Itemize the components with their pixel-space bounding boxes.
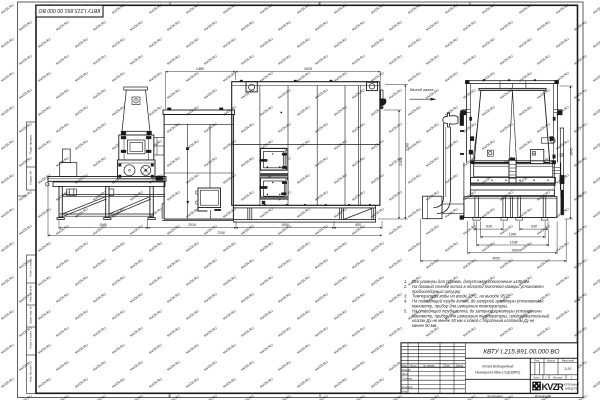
svg-text:КВТУ I.215.891.00.000 ВО: КВТУ I.215.891.00.000 ВО bbox=[39, 7, 101, 13]
svg-text:ЗАВОД РФ: ЗАВОД РФ bbox=[565, 388, 577, 391]
svg-text:Изм.: Изм. bbox=[401, 364, 407, 368]
svg-text:2.: 2. bbox=[403, 284, 407, 289]
svg-text:1:20: 1:20 bbox=[564, 367, 571, 371]
svg-text:1960: 1960 bbox=[99, 223, 107, 227]
svg-text:2845: 2845 bbox=[570, 148, 574, 157]
svg-text:4.: 4. bbox=[404, 299, 407, 304]
svg-text:Подп. и дата: Подп. и дата bbox=[29, 331, 33, 349]
svg-text:Лит.: Лит. bbox=[533, 358, 540, 362]
svg-text:3050: 3050 bbox=[492, 256, 500, 260]
svg-text:Перв. примен.: Перв. примен. bbox=[29, 134, 33, 154]
svg-text:Лист: Лист bbox=[532, 375, 541, 379]
svg-text:630: 630 bbox=[531, 225, 537, 229]
svg-text:КОТЕЛЬНЫЙ: КОТЕЛЬНЫЙ bbox=[564, 384, 579, 387]
svg-text:Справ. №: Справ. № bbox=[29, 170, 33, 184]
svg-text:Масса: Масса bbox=[547, 358, 555, 362]
svg-text:Пров.: Пров. bbox=[402, 372, 409, 376]
svg-text:КВТУ I.215.891.00.000 ВО: КВТУ I.215.891.00.000 ВО bbox=[483, 349, 559, 356]
svg-text:Дата: Дата bbox=[455, 364, 464, 368]
svg-text:5.: 5. bbox=[404, 308, 407, 313]
svg-text:1906: 1906 bbox=[511, 248, 519, 252]
svg-text:KVZR: KVZR bbox=[542, 382, 565, 392]
svg-text:Формат А2: Формат А2 bbox=[535, 394, 552, 398]
svg-text:2160: 2160 bbox=[405, 142, 409, 152]
svg-text:7200: 7200 bbox=[217, 231, 225, 235]
svg-text:2: 2 bbox=[318, 2, 320, 6]
svg-text:1950: 1950 bbox=[281, 223, 289, 227]
svg-text:2034: 2034 bbox=[187, 223, 196, 227]
svg-text:3625: 3625 bbox=[304, 67, 313, 71]
svg-text:2105: 2105 bbox=[399, 157, 403, 167]
svg-text:Неалюрит1-КВм-2,5-ДО(ВПХ): Неалюрит1-КВм-2,5-ДО(ВПХ) bbox=[475, 371, 520, 375]
svg-text:Инв. № дубл.: Инв. № дубл. bbox=[29, 284, 33, 301]
svg-text:менее 50 мм.: менее 50 мм. bbox=[412, 323, 437, 328]
svg-text:Котел Водогрейный: Котел Водогрейный bbox=[482, 365, 513, 369]
svg-text:№ докум.: № докум. bbox=[423, 364, 435, 368]
svg-text:685: 685 bbox=[355, 223, 361, 227]
svg-text:Инв. № подл.: Инв. № подл. bbox=[29, 364, 33, 382]
svg-text:Т.контр.: Т.контр. bbox=[402, 376, 413, 380]
svg-text:1360: 1360 bbox=[509, 232, 517, 236]
svg-text:Разраб.: Разраб. bbox=[402, 368, 412, 372]
svg-text:Копировал: Копировал bbox=[488, 394, 503, 398]
svg-text:Утв.: Утв. bbox=[402, 389, 408, 393]
svg-text:1538: 1538 bbox=[510, 241, 518, 245]
svg-text:1485: 1485 bbox=[196, 67, 205, 71]
svg-text:630: 630 bbox=[486, 225, 492, 229]
svg-text:Выход газов: Выход газов bbox=[410, 87, 433, 92]
svg-text:Н.контр.: Н.контр. bbox=[402, 385, 414, 389]
svg-text:Масштаб: Масштаб bbox=[562, 358, 575, 362]
svg-text:Лист: Лист bbox=[409, 364, 418, 368]
svg-text:Взам. инв. №: Взам. инв. № bbox=[29, 306, 33, 323]
svg-text:Подп. и дата: Подп. и дата bbox=[29, 259, 33, 277]
svg-text:1: 1 bbox=[168, 394, 170, 398]
svg-text:Подп.: Подп. bbox=[443, 364, 450, 368]
svg-text:Листов: Листов bbox=[552, 375, 563, 379]
